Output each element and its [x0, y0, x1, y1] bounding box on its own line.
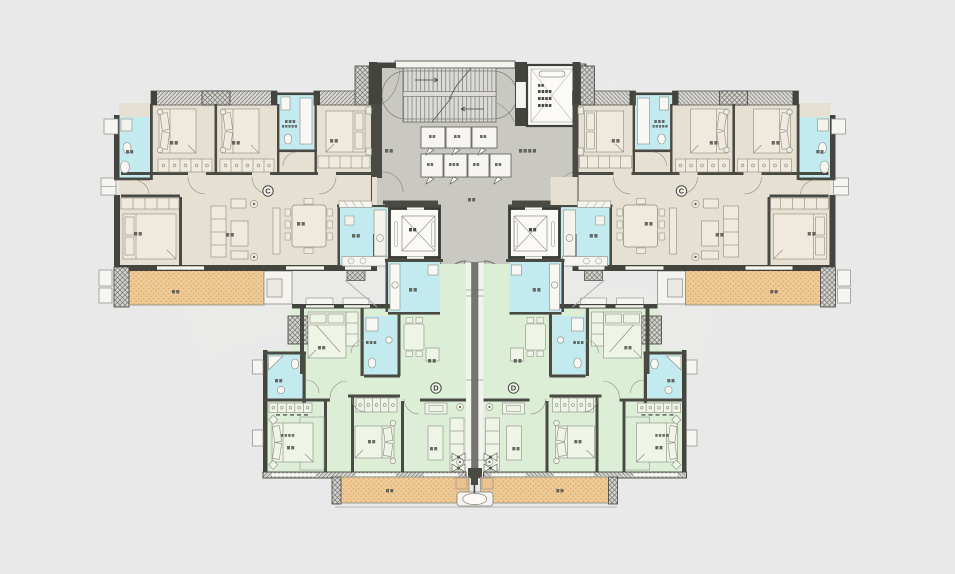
svg-text:C: C: [265, 187, 271, 196]
svg-text:C: C: [679, 187, 685, 196]
svg-text:D: D: [511, 384, 517, 393]
svg-text:D: D: [433, 384, 439, 393]
